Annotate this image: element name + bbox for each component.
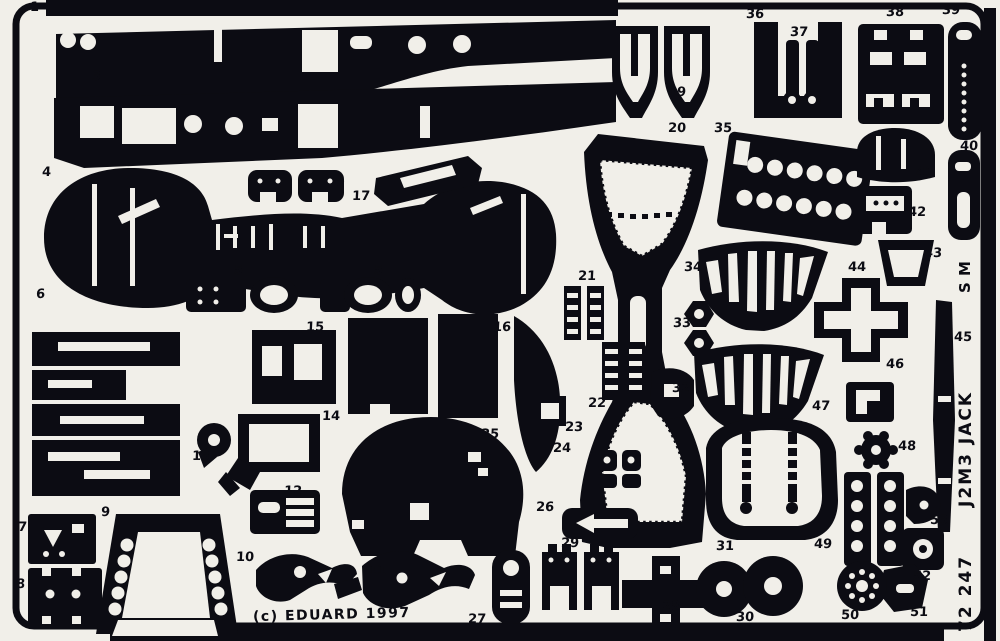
- sheet-code: 72 247: [956, 555, 976, 632]
- part-44-shape: [814, 278, 908, 362]
- part-42-shape: [858, 186, 912, 234]
- part-30-shape: [696, 556, 803, 617]
- part-40-shape: [948, 150, 980, 240]
- part-12-shape: [250, 490, 320, 534]
- part-9-shape: [96, 514, 238, 636]
- part-21-shape: [564, 286, 604, 340]
- part-35-shape: [716, 131, 874, 246]
- part-15-shape: [252, 330, 336, 404]
- part-41-shape: [857, 128, 935, 182]
- part-34-shape: [698, 241, 828, 331]
- part-6-shape: [32, 332, 180, 496]
- part-27-shape: [492, 550, 530, 624]
- part-32-shape: [650, 368, 694, 418]
- part-50-shape: [837, 561, 887, 611]
- part-23-shape: [534, 396, 566, 426]
- part-49-shape: [844, 472, 904, 566]
- sheet-subject: J2M3 JACK: [956, 391, 976, 507]
- part-53-shape: [906, 486, 940, 524]
- part-11-shape: [334, 551, 475, 608]
- part-33-shape: [684, 301, 714, 356]
- part-38-shape: [858, 24, 944, 124]
- part-8-shape: [28, 568, 102, 624]
- part-7-shape: [28, 514, 96, 564]
- part-28-shape: [622, 556, 706, 630]
- monogram-letter-s: S: [957, 278, 974, 293]
- part-14-shape: [218, 414, 320, 496]
- photo-etch-fret-sheet: 1321745561936373839203540414243443433211…: [0, 0, 1000, 641]
- fret-drawing: [0, 0, 1000, 641]
- sheet-code-vertical: 72 247 J2M3 JACK: [956, 297, 976, 632]
- part-48-shape: [854, 431, 898, 469]
- monogram-letter-m: M: [957, 261, 974, 276]
- part-31-shape: [706, 418, 838, 540]
- part-19-shape: [612, 26, 710, 118]
- part-2-shape: [248, 170, 344, 202]
- part-43-shape: [878, 240, 934, 286]
- monogram-ms: M S: [958, 260, 973, 294]
- part-29-shape: [542, 544, 619, 610]
- part-26-shape: [562, 508, 638, 539]
- part-25-shape: [342, 417, 523, 556]
- part-13-shape: [197, 423, 231, 468]
- part-52-shape: [902, 528, 944, 570]
- part-39-shape: [948, 22, 982, 140]
- part-46-shape: [846, 382, 894, 422]
